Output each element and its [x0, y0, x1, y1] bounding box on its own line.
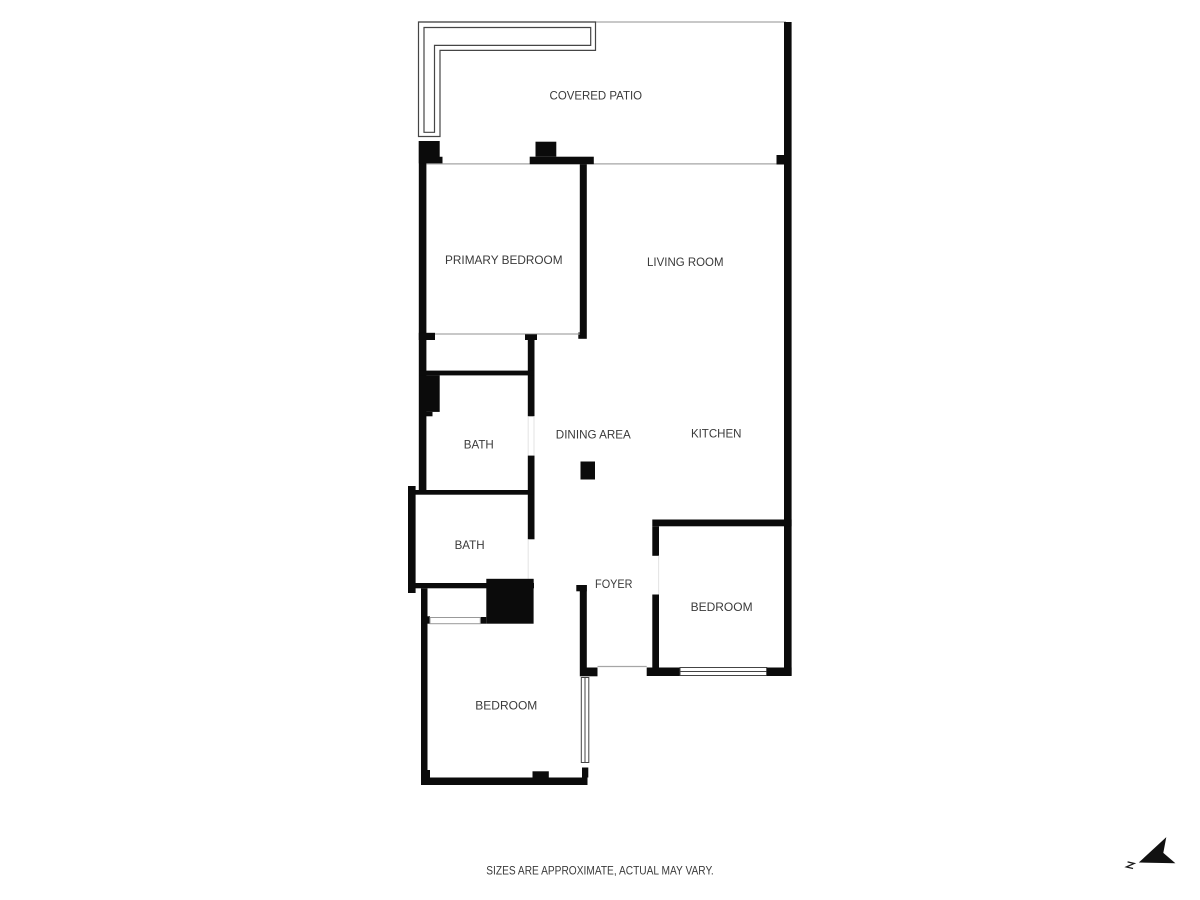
svg-text:COVERED PATIO: COVERED PATIO: [550, 88, 643, 102]
svg-text:BATH: BATH: [455, 538, 485, 552]
svg-text:KITCHEN: KITCHEN: [691, 426, 742, 440]
svg-text:SIZES ARE APPROXIMATE, ACTUAL: SIZES ARE APPROXIMATE, ACTUAL MAY VARY.: [486, 863, 714, 877]
svg-text:FOYER: FOYER: [595, 577, 633, 591]
svg-text:BEDROOM: BEDROOM: [475, 699, 537, 713]
svg-text:DINING AREA: DINING AREA: [556, 427, 631, 441]
svg-text:BATH: BATH: [464, 437, 494, 451]
svg-text:LIVING ROOM: LIVING ROOM: [647, 255, 724, 269]
svg-text:BEDROOM: BEDROOM: [691, 600, 753, 614]
svg-text:PRIMARY BEDROOM: PRIMARY BEDROOM: [445, 253, 563, 267]
